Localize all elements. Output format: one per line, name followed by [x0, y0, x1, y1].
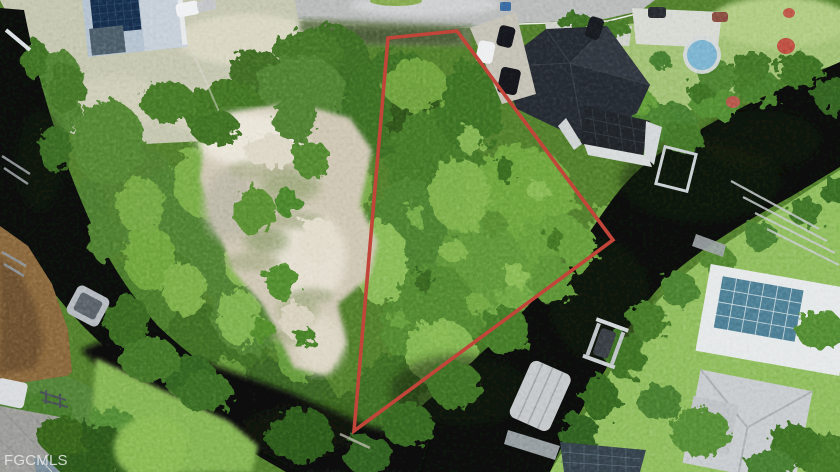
svg-text:FGCMLS: FGCMLS: [4, 452, 68, 469]
